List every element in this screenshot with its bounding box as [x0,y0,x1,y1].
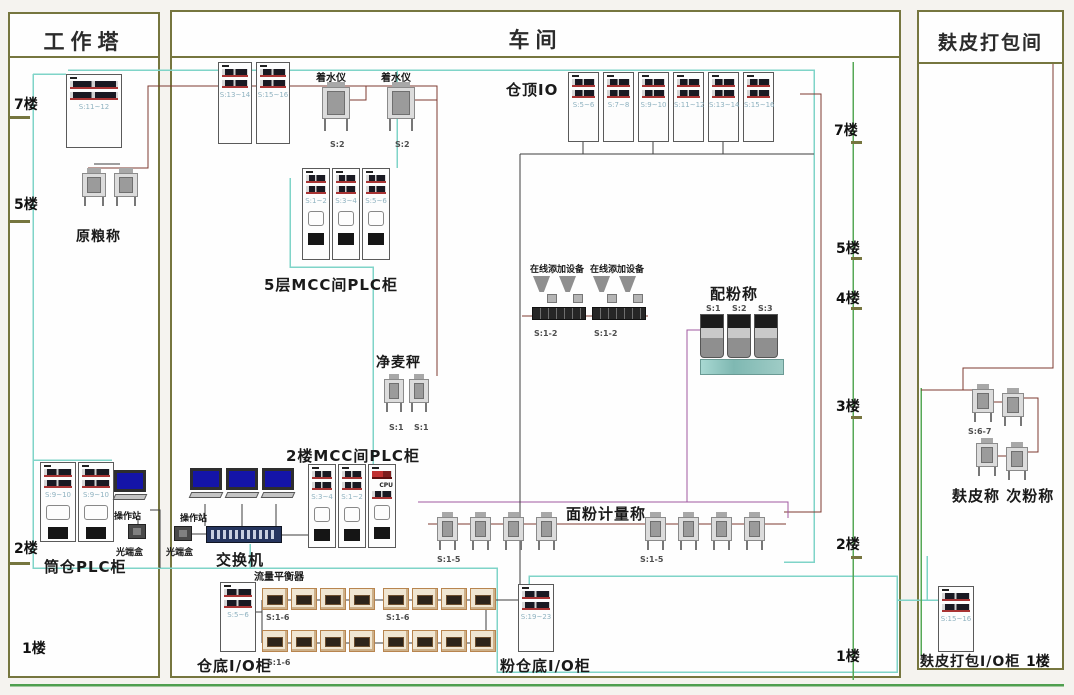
ethernet-switch-icon [206,526,282,543]
scale-icon [972,384,994,422]
flow-balancer-icon [441,630,467,652]
io-cabinet: S:11~12 [673,72,704,142]
io-cabinet: S:15~16 [938,586,974,652]
floor-tick [851,307,862,310]
blending-machine-icon [700,314,784,375]
cpu-cabinet: CPU [368,464,396,548]
io-module-strip [70,81,118,89]
floor-label: 2楼 [14,538,38,558]
optical-box-label: 光端盒 [116,545,143,558]
floor-tick [851,556,862,559]
io-module-strip [44,480,72,488]
bran-io-title: 麸皮打包I/O柜 [920,651,1020,671]
scale-icon [82,168,106,206]
io-cabinet: S:19~23 [518,584,554,652]
water-device-title: 着水仪 [381,69,411,84]
cabinet-label: S:5~6 [221,611,255,619]
optical-box-icon [174,526,192,541]
cabinet-label: S:13~14 [709,101,738,109]
cabinet-label: S:15~16 [744,101,773,109]
io-cabinet: S:13~14 [708,72,739,142]
device-label: S:3 [758,304,773,313]
water-device-icon [387,82,415,131]
device-label: S:1 [414,423,429,432]
cabinet-window [84,505,108,520]
mcc-cabinet: S:5~6 [362,168,390,260]
io-module-strip [82,480,110,488]
floor-label: 5楼 [836,238,860,258]
device-label: S:2 [395,140,410,149]
io-module-strip [222,80,248,88]
scale-icon [678,512,699,550]
io-cabinet: S:9~10 [638,72,669,142]
operator-station-label: 操作站 [114,509,141,522]
device-label: S:6-7 [968,427,991,436]
cabinet-label: S:19~23 [519,613,553,621]
io-module-strip [260,80,286,88]
cabinet-label: S:3~4 [333,197,359,205]
floor-tick [851,257,862,260]
operator-station-label: 操作站 [180,511,207,524]
floor-tick [8,220,30,223]
device-label: S:1 [389,423,404,432]
silo-top-io-title: 仓顶IO [506,79,558,100]
io-cabinet: S:15~16 [256,62,290,144]
cabinet-label: S:7~8 [604,101,633,109]
cabinet-window [46,505,70,520]
device-label: S:2 [732,304,747,313]
mcc-cabinet: S:1~2 [338,464,366,548]
device-label: S:1-2 [594,329,617,338]
cabinet-vent [48,527,68,539]
optical-box-icon [128,524,146,539]
io-module-strip [44,469,72,477]
cabinet-label: S:1~2 [303,197,329,205]
io-cabinet: S:13~14 [218,62,252,144]
flour-silo-io-title: 粉仓底I/O柜 [500,655,591,676]
cabinet-label: S:11~12 [674,101,703,109]
cabinet-label: S:11~12 [67,103,121,111]
flow-balancer-icon [291,588,317,610]
mcc2-title: 2楼MCC间PLC柜 [286,445,420,466]
floor-tick [8,116,30,119]
floor-label: 7楼 [834,120,858,140]
flow-balancer-icon [320,588,346,610]
io-cabinet: S:7~8 [603,72,634,142]
teal-network-wires [33,70,938,672]
device-label: S:2 [330,140,345,149]
monitor-icon [262,468,294,498]
additive-device-icon [592,276,646,320]
cabinet-label: S:13~14 [219,91,251,99]
cabinet-label: S:1~2 [339,493,365,501]
io-module-strip [260,69,286,77]
device-label: S:1-6 [266,613,289,622]
io-module-strip [70,92,118,100]
floor-label: 3楼 [836,396,860,416]
io-module-strip [222,69,248,77]
mcc-cabinet: S:1~2 [302,168,330,260]
raw-grain-scale-title: 原粮称 [76,226,121,246]
blend-scale-title: 配粉称 [710,283,758,304]
flow-balancer-icon [262,588,288,610]
flow-balancer-icon [470,630,496,652]
scale-icon [384,374,404,412]
water-device-icon [322,82,350,131]
silo-bottom-io-title: 仓底I/O柜 [197,655,272,676]
flour-meter-title: 面粉计量称 [566,503,646,524]
diagram-canvas: 工作塔 车间 麸皮打包间 7楼 5楼 2楼 1楼 S:11~12 原粮称 S:9… [0,0,1074,695]
floor-tick [8,562,30,565]
device-label: S:1 [706,304,721,313]
clean-wheat-title: 净麦秤 [376,352,421,372]
cabinet-label: S:5~6 [363,197,389,205]
floor-label: 4楼 [836,288,860,308]
scale-icon [1006,442,1028,480]
cabinet-label: S:3~4 [309,493,335,501]
device-label: S:1-5 [640,555,663,564]
scale-icon [503,512,524,550]
floor-label: 5楼 [14,194,38,214]
flow-balancer-icon [349,588,375,610]
monitor-icon [226,468,258,498]
floor-label: 1楼 [22,638,46,658]
flow-balancer-icon [383,630,409,652]
device-label: S:1-5 [437,555,460,564]
floor-tick [851,141,862,144]
switch-title: 交换机 [216,549,264,570]
silo-plc-cabinet: S:9~10 [40,462,76,542]
scale-icon [470,512,491,550]
scale-icon [536,512,557,550]
flow-balancer-icon [412,630,438,652]
additive-title: 在线添加设备 [590,262,644,275]
floor-tick [851,416,862,419]
scale-icon [976,438,998,476]
mcc5-title: 5层MCC间PLC柜 [264,274,398,295]
floor-label: 1楼 [836,646,860,666]
cpu-label: CPU [371,482,393,489]
floor-label: 2楼 [836,534,860,554]
monitor-icon [190,468,222,498]
io-module-strip [82,469,110,477]
scale-icon [437,512,458,550]
scale-icon [114,168,138,206]
flow-balancer-icon [320,630,346,652]
device-label: S:1-2 [534,329,557,338]
optical-box-label: 光端盒 [166,545,193,558]
floor-label: 1楼 [1026,651,1050,671]
silo-plc-title: 筒仓PLC柜 [44,556,127,577]
floor-label: 7楼 [14,94,38,114]
flow-balancer-icon [383,588,409,610]
cabinet-label: S:15~16 [939,615,973,623]
bran-scales-title: 麸皮称 次粉称 [952,485,1054,506]
cabinet-label: S:9~10 [639,101,668,109]
flow-balancer-title: 流量平衡器 [254,568,304,583]
io-cabinet: S:5~6 [568,72,599,142]
cabinet-label: S:9~10 [41,491,75,499]
monitor-icon [114,470,146,500]
scale-icon [645,512,666,550]
scale-icon [744,512,765,550]
io-cabinet: S:15~16 [743,72,774,142]
io-cabinet: S:5~6 [220,582,256,652]
flow-balancer-icon [412,588,438,610]
cpu-module-strip [372,471,392,479]
water-device-title: 着水仪 [316,69,346,84]
cabinet-label: S:9~10 [79,491,113,499]
silo-plc-cabinet: S:9~10 [78,462,114,542]
flow-balancer-icon [441,588,467,610]
cabinet-label: S:15~16 [257,91,289,99]
additive-title: 在线添加设备 [530,262,584,275]
cabinet-label: S:5~6 [569,101,598,109]
scale-icon [711,512,732,550]
flow-balancer-icon [349,630,375,652]
cabinet-vent [86,527,106,539]
additive-device-icon [532,276,586,320]
flow-balancer-icon [262,630,288,652]
scale-icon [409,374,429,412]
mcc-cabinet: S:3~4 [332,168,360,260]
flow-balancer-icon [470,588,496,610]
flow-balancer-icon [291,630,317,652]
device-label: S:1-6 [386,613,409,622]
mcc-cabinet: S:3~4 [308,464,336,548]
plc-cabinet-7f: S:11~12 [66,74,122,148]
scale-icon [1002,388,1024,426]
